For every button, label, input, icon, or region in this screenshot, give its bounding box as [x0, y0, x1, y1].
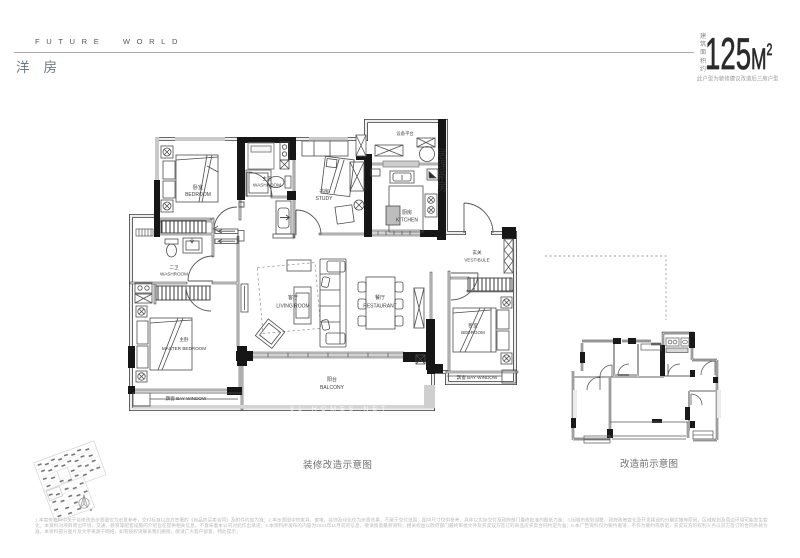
- svg-text:BEDROOM: BEDROOM: [461, 330, 485, 335]
- svg-text:阳台: 阳台: [327, 376, 337, 383]
- svg-text:BALCONY: BALCONY: [320, 385, 345, 391]
- svg-text:MASTER BEDROOM: MASTER BEDROOM: [162, 346, 206, 351]
- svg-text:31 HOMES NET: 31 HOMES NET: [290, 406, 389, 413]
- svg-text:二卫: 二卫: [169, 265, 179, 270]
- svg-text:厨房: 厨房: [402, 209, 412, 216]
- svg-text:STUDY: STUDY: [316, 196, 334, 202]
- svg-text:飘窗 BAY WINDOW: 飘窗 BAY WINDOW: [457, 374, 498, 381]
- svg-text:WASHROOM: WASHROOM: [253, 183, 281, 188]
- svg-text:卧室: 卧室: [468, 322, 478, 329]
- svg-text:居理新房: 居理新房: [435, 148, 448, 193]
- svg-text:主卧: 主卧: [179, 336, 189, 343]
- svg-text:客厅: 客厅: [288, 294, 298, 301]
- svg-text:卧室: 卧室: [193, 184, 203, 191]
- svg-text:KITCHEN: KITCHEN: [396, 218, 418, 224]
- svg-text:飘窗 BAY WINDOW: 飘窗 BAY WINDOW: [166, 395, 207, 402]
- svg-text:主卫: 主卫: [262, 175, 272, 181]
- svg-text:书房: 书房: [319, 188, 329, 195]
- svg-text:WASHROOM: WASHROOM: [160, 272, 188, 277]
- svg-text:RESTAURANT: RESTAURANT: [363, 304, 397, 310]
- svg-text:玄关: 玄关: [472, 249, 482, 256]
- svg-text:VESTIBULE: VESTIBULE: [464, 258, 489, 263]
- svg-text:餐厅: 餐厅: [375, 294, 385, 301]
- svg-text:LIVING ROOM: LIVING ROOM: [276, 304, 309, 310]
- svg-text:BEDROOM: BEDROOM: [185, 192, 211, 198]
- svg-text:设备平台: 设备平台: [396, 130, 414, 137]
